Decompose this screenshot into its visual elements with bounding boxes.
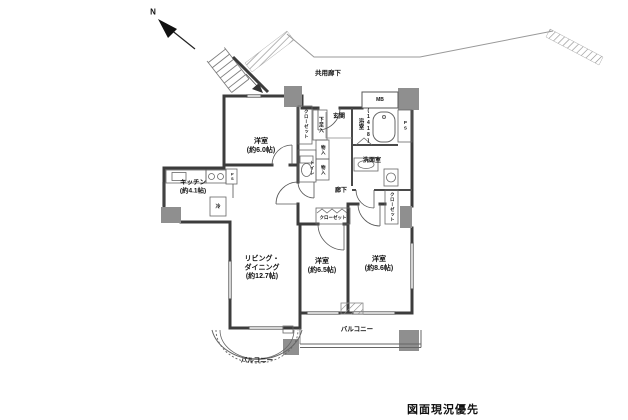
hallway-label: 廊下 — [335, 187, 347, 195]
balcony-south-label: バルコニー — [341, 326, 373, 334]
closet-bedroom2-label: クローゼット — [320, 215, 347, 221]
balcony-curved-label: バルコニー — [241, 357, 273, 365]
room-size: (約6.5帖) — [308, 266, 336, 275]
corridor-boundary-line — [287, 31, 553, 57]
entrance-label: 玄関 — [333, 113, 345, 121]
stairs-hatch — [207, 47, 249, 92]
floorplan: N 共用廊下 洋室 (約6.0帖) クローゼット 下足入 玄関 MB 浴室 (1… — [0, 0, 628, 420]
ps-bath-label: PS — [402, 121, 408, 132]
storage-upper-label: 物入 — [319, 145, 325, 155]
bathtub-icon — [373, 112, 395, 142]
washroom-label: 洗面室 — [363, 157, 381, 165]
priority-note: 図面現況優先 — [407, 401, 479, 417]
meter-box-label: MB — [376, 97, 384, 103]
stove-icon — [206, 170, 226, 183]
boundary-hatch-left — [245, 31, 294, 72]
closet-bedroom1-label: クローゼット — [302, 109, 308, 139]
room-label-living-dining: リビング・ ダイニング (約12.7帖) — [245, 255, 280, 281]
north-arrow-icon — [158, 19, 195, 49]
floorplan-drawing — [0, 0, 628, 420]
escape-hatch — [341, 303, 363, 314]
room-size: (約12.7帖) — [245, 272, 280, 281]
windows — [163, 95, 413, 329]
room-name: 洋室 — [247, 137, 275, 146]
room-name: キッチン — [180, 179, 206, 187]
refrigerator-label: 冷 — [216, 204, 221, 210]
room-label-kitchen: キッチン (約4.1帖) — [180, 179, 206, 195]
storage-lower-label: 物入 — [319, 165, 325, 175]
toilet-label: トイレ — [308, 161, 314, 176]
room-size: (約8.6帖) — [365, 264, 393, 273]
room-size: (約4.1帖) — [180, 187, 206, 195]
room-name: ダイニング — [245, 264, 280, 273]
unit-walls — [164, 96, 412, 328]
room-name: 洋室 — [308, 257, 336, 266]
washing-machine-icon — [384, 169, 398, 186]
room-name: リビング・ — [245, 255, 280, 264]
room-label-western1: 洋室 (約6.0帖) — [247, 137, 275, 155]
room-label-western2: 洋室 (約6.5帖) — [308, 257, 336, 275]
bath-name-label: 浴室 — [357, 118, 364, 130]
room-size: (約6.0帖) — [247, 146, 275, 155]
room-name: 洋室 — [365, 255, 393, 264]
north-label: N — [150, 8, 156, 18]
common-corridor-label: 共用廊下 — [315, 70, 341, 78]
shoe-cabinet-label: 下足入 — [317, 117, 323, 134]
closet-bedroom3-label: クローゼット — [388, 192, 394, 222]
bath-size-label: (1418) — [365, 108, 371, 144]
boundary-hatch-right — [546, 29, 603, 65]
room-label-western3: 洋室 (約8.6帖) — [365, 255, 393, 273]
ps-kitchen-label: PS — [229, 172, 234, 182]
